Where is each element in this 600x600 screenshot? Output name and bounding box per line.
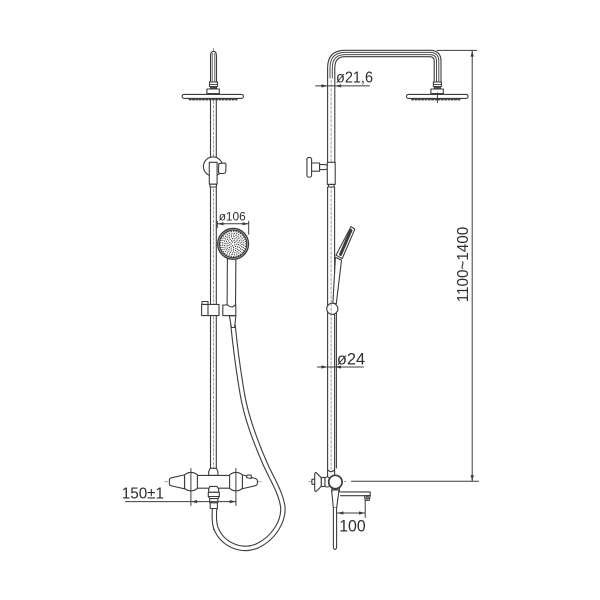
svg-text:150±1: 150±1 [122,486,164,503]
svg-text:100: 100 [339,518,366,536]
svg-text:ø24: ø24 [337,350,365,368]
svg-text:ø21,6: ø21,6 [336,69,373,86]
svg-text:ø106: ø106 [219,210,246,224]
svg-text:1100~1400: 1100~1400 [455,227,472,303]
